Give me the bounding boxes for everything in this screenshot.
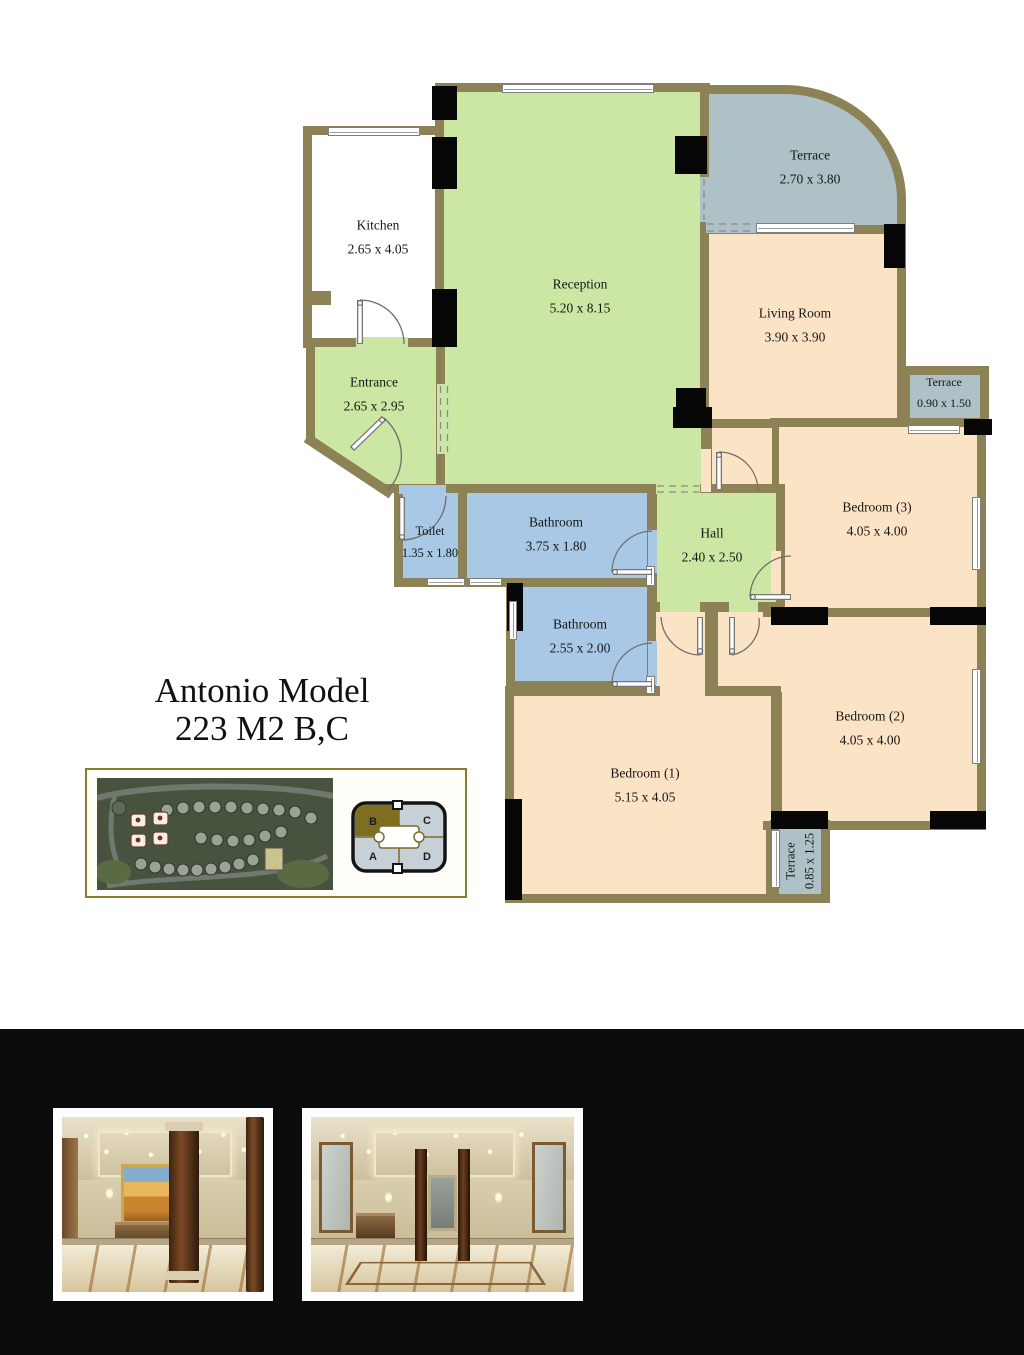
label-terrace-top: Terrace2.70 x 3.80 (780, 143, 841, 190)
door-opening (399, 485, 446, 494)
site-aerial-image (97, 778, 333, 890)
wall-segment (705, 612, 718, 692)
window (908, 425, 960, 434)
label-hall: Hall2.40 x 2.50 (682, 521, 743, 568)
footer-banner: أنطونيــــادس سيتــــى كــومبــاوند (0, 1029, 1024, 1355)
label-entrance: Entrance2.65 x 2.95 (344, 370, 405, 417)
horse-painting (121, 1164, 176, 1224)
wall-segment (705, 686, 781, 696)
column (432, 289, 457, 347)
lobby-photo-2 (302, 1108, 583, 1301)
column (771, 811, 828, 829)
key-plan-unit-b: B (369, 816, 377, 828)
wall-segment (303, 291, 331, 305)
lobby-photo-1 (53, 1108, 273, 1301)
key-plan-unit-a: A (369, 851, 377, 863)
building-key-plan: B C A D (349, 800, 449, 874)
window (502, 84, 654, 93)
column (675, 136, 707, 174)
title-line-1: Antonio Model (155, 672, 370, 710)
label-kitchen: Kitchen2.65 x 4.05 (348, 213, 409, 260)
label-toilet: Toilet1.35 x 1.80 (402, 521, 458, 565)
column (432, 86, 457, 120)
wall-segment (700, 602, 729, 612)
window (972, 497, 981, 570)
column (432, 137, 457, 189)
door-opening (656, 484, 700, 494)
column (930, 811, 986, 829)
flyer-page: Kitchen2.65 x 4.05 Reception5.20 x 8.15 … (0, 0, 1024, 1355)
wall-segment (505, 686, 660, 696)
page-title: Antonio Model 223 M2 B,C (155, 672, 370, 748)
column (930, 607, 986, 625)
window (756, 223, 855, 233)
column (673, 407, 712, 428)
marble-column (415, 1149, 427, 1261)
window (509, 601, 517, 640)
door-opening (701, 449, 711, 492)
column (884, 224, 905, 268)
window (646, 676, 655, 694)
column (771, 607, 828, 625)
wall-mirror (319, 1142, 353, 1233)
key-plan-unit-c: C (423, 815, 431, 827)
marble-column (169, 1126, 199, 1284)
window (646, 566, 655, 586)
elevator-door (428, 1175, 457, 1231)
marble-column (458, 1149, 470, 1261)
label-reception: Reception5.20 x 8.15 (550, 272, 611, 319)
title-line-2: 223 M2 B,C (155, 710, 370, 748)
column (964, 419, 992, 435)
label-terrace-right: Terrace0.90 x 1.50 (917, 372, 971, 414)
door-opening (700, 177, 709, 222)
window (771, 830, 780, 888)
wall-segment (771, 692, 782, 814)
label-bathroom-2: Bathroom2.55 x 2.00 (550, 612, 611, 659)
wall-mirror (532, 1142, 566, 1233)
wall-pilaster (62, 1138, 78, 1247)
label-bathroom-1: Bathroom3.75 x 1.80 (526, 510, 587, 557)
label-bedroom-2: Bedroom (2)4.05 x 4.00 (835, 704, 904, 751)
key-plan-unit-d: D (423, 851, 431, 863)
label-living: Living Room3.90 x 3.90 (759, 301, 831, 348)
door-opening (706, 222, 757, 233)
marble-column (246, 1117, 264, 1292)
site-plan-box: B C A D (85, 768, 467, 898)
label-bedroom-1: Bedroom (1)5.15 x 4.05 (610, 761, 679, 808)
door-opening (356, 337, 408, 348)
wall-segment (648, 602, 660, 612)
window (328, 127, 420, 136)
window (427, 578, 465, 586)
window (469, 578, 502, 586)
door-opening (437, 384, 446, 454)
label-terrace-bottom: Terrace0.85 x 1.25 (781, 833, 819, 889)
label-bedroom-3: Bedroom (3)4.05 x 4.00 (842, 495, 911, 542)
corridor-living-hall (710, 428, 772, 490)
window (972, 669, 981, 764)
column (505, 799, 522, 900)
door-opening (771, 551, 781, 598)
